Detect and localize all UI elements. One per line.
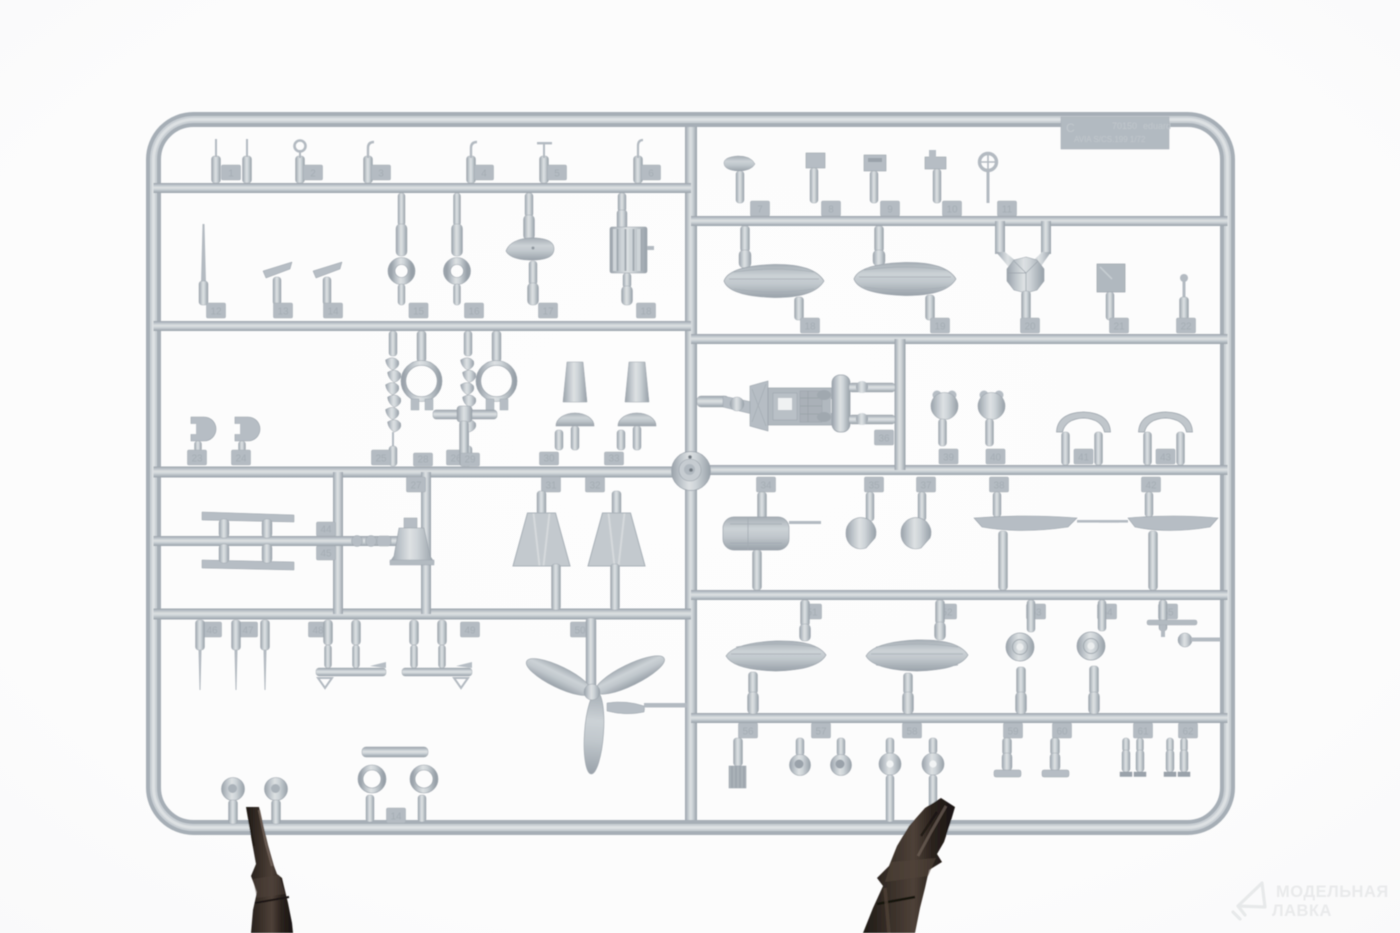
svg-text:25: 25 xyxy=(375,453,387,464)
svg-text:57: 57 xyxy=(815,726,827,737)
svg-text:2: 2 xyxy=(310,168,316,179)
svg-text:42: 42 xyxy=(1145,480,1157,491)
svg-text:МОДЕЛЬНАЯ: МОДЕЛЬНАЯ xyxy=(1276,883,1389,901)
svg-text:AVIA S/CS.199 1/72: AVIA S/CS.199 1/72 xyxy=(1074,135,1146,144)
svg-text:62: 62 xyxy=(1182,726,1194,737)
svg-text:C: C xyxy=(1066,121,1075,135)
svg-text:17: 17 xyxy=(542,306,554,317)
svg-text:eduard: eduard xyxy=(1143,121,1171,131)
svg-text:58: 58 xyxy=(906,726,918,737)
svg-text:22: 22 xyxy=(1180,321,1192,332)
svg-text:18: 18 xyxy=(804,321,816,332)
svg-text:4: 4 xyxy=(481,168,487,179)
svg-text:41: 41 xyxy=(1078,452,1090,463)
svg-text:48: 48 xyxy=(312,625,324,636)
svg-text:43: 43 xyxy=(1160,452,1172,463)
svg-text:23: 23 xyxy=(191,453,203,464)
svg-text:6: 6 xyxy=(648,168,654,179)
svg-text:31: 31 xyxy=(545,480,557,491)
svg-text:38: 38 xyxy=(993,480,1005,491)
svg-text:50: 50 xyxy=(574,625,586,636)
svg-text:20: 20 xyxy=(1024,321,1036,332)
svg-text:13: 13 xyxy=(277,306,289,317)
svg-text:56: 56 xyxy=(742,726,754,737)
svg-text:44: 44 xyxy=(320,524,332,535)
svg-text:40: 40 xyxy=(990,452,1002,463)
svg-text:12: 12 xyxy=(210,306,222,317)
svg-text:5: 5 xyxy=(554,168,560,179)
svg-text:14: 14 xyxy=(390,811,402,822)
svg-text:27: 27 xyxy=(410,480,422,491)
svg-text:45: 45 xyxy=(320,548,332,559)
svg-text:18: 18 xyxy=(640,306,652,317)
svg-text:46: 46 xyxy=(206,625,218,636)
svg-text:3: 3 xyxy=(378,168,384,179)
svg-text:28: 28 xyxy=(417,454,429,465)
svg-text:36: 36 xyxy=(878,433,890,444)
svg-text:32: 32 xyxy=(589,480,601,491)
svg-text:37: 37 xyxy=(920,480,932,491)
svg-text:35: 35 xyxy=(868,480,880,491)
svg-text:21: 21 xyxy=(1113,321,1125,332)
svg-text:1: 1 xyxy=(228,168,234,179)
svg-text:70150: 70150 xyxy=(1112,121,1137,131)
svg-text:16: 16 xyxy=(468,306,480,317)
svg-text:7: 7 xyxy=(757,204,763,215)
svg-text:30: 30 xyxy=(543,453,555,464)
svg-text:24: 24 xyxy=(235,453,247,464)
svg-text:39: 39 xyxy=(943,452,955,463)
svg-text:60: 60 xyxy=(1056,726,1068,737)
svg-text:ЛАВКА: ЛАВКА xyxy=(1272,902,1332,920)
svg-text:8: 8 xyxy=(828,204,834,215)
svg-text:9: 9 xyxy=(887,204,893,215)
svg-text:10: 10 xyxy=(946,204,958,215)
svg-text:47: 47 xyxy=(242,625,254,636)
svg-text:15: 15 xyxy=(413,306,425,317)
svg-text:19: 19 xyxy=(934,321,946,332)
svg-text:49: 49 xyxy=(464,625,476,636)
svg-text:14: 14 xyxy=(327,306,339,317)
svg-text:11: 11 xyxy=(1002,204,1013,215)
svg-text:34: 34 xyxy=(760,480,772,491)
svg-text:33: 33 xyxy=(608,453,620,464)
svg-text:59: 59 xyxy=(1007,726,1019,737)
svg-text:29: 29 xyxy=(464,454,476,465)
svg-text:61: 61 xyxy=(1137,726,1149,737)
